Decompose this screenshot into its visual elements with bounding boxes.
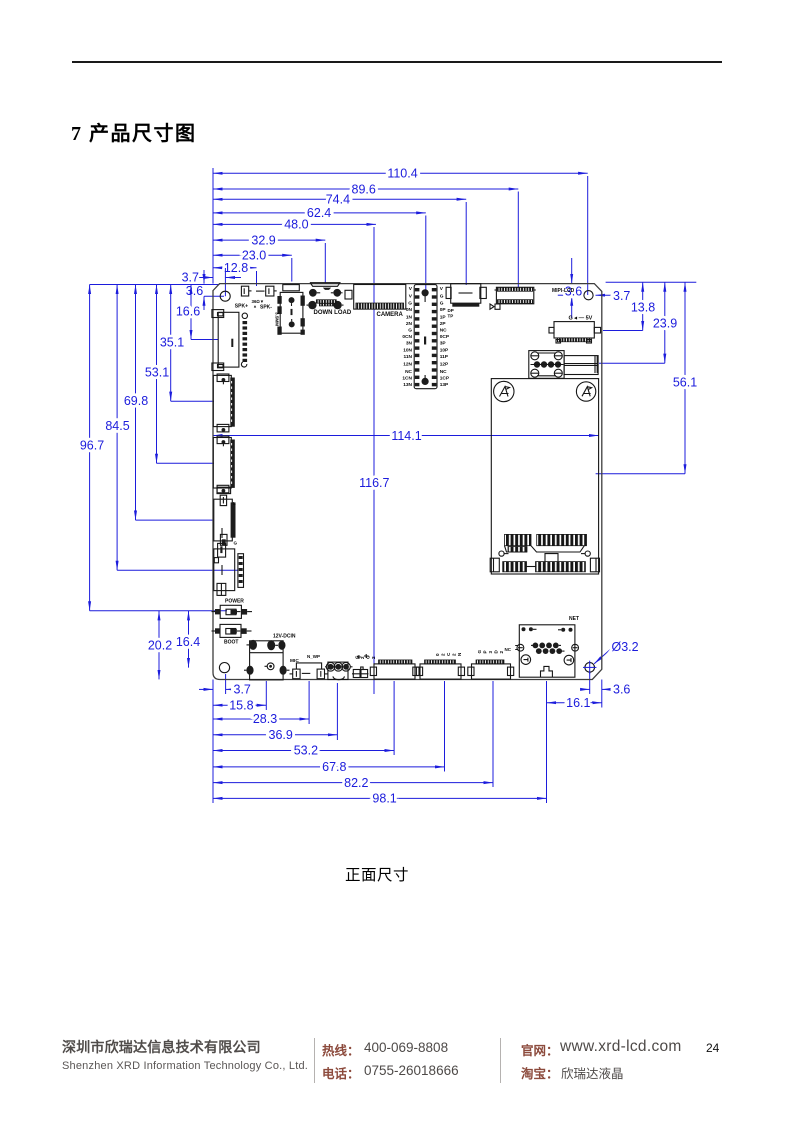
svg-text:0: 0 bbox=[435, 653, 440, 656]
svg-text:2: 2 bbox=[360, 656, 365, 659]
svg-text:48.0: 48.0 bbox=[284, 218, 308, 232]
svg-text:98.1: 98.1 bbox=[372, 792, 396, 806]
svg-text:23.9: 23.9 bbox=[653, 317, 677, 331]
svg-text:116.7: 116.7 bbox=[359, 476, 389, 490]
svg-text:P: P bbox=[483, 650, 488, 653]
svg-text:SPK+: SPK+ bbox=[235, 304, 248, 310]
svg-text:53.1: 53.1 bbox=[145, 366, 169, 380]
svg-text:16.4: 16.4 bbox=[176, 635, 200, 649]
svg-text:D: D bbox=[494, 650, 499, 654]
svg-text:NC: NC bbox=[505, 647, 512, 652]
svg-text:96.7: 96.7 bbox=[80, 439, 104, 453]
svg-text:89.6: 89.6 bbox=[352, 182, 376, 196]
svg-text:16.6: 16.6 bbox=[176, 305, 200, 319]
svg-text:84.5: 84.5 bbox=[105, 419, 129, 433]
svg-text:SPK-: SPK- bbox=[260, 305, 272, 311]
svg-text:12.8: 12.8 bbox=[224, 261, 248, 275]
svg-text:C: C bbox=[446, 652, 451, 656]
svg-text:POWER: POWER bbox=[225, 599, 244, 605]
svg-text:▲: ▲ bbox=[253, 304, 257, 309]
svg-text:53.2: 53.2 bbox=[294, 744, 318, 758]
svg-text:3: 3 bbox=[488, 651, 493, 654]
svg-text:114.1: 114.1 bbox=[391, 429, 421, 443]
svg-text:36.9: 36.9 bbox=[269, 728, 293, 742]
svg-text:L: L bbox=[233, 501, 236, 506]
svg-text:G: G bbox=[477, 650, 482, 654]
svg-text:12V-DCIN: 12V-DCIN bbox=[273, 634, 296, 640]
svg-text:62.4: 62.4 bbox=[307, 206, 331, 220]
svg-text:3.6: 3.6 bbox=[186, 284, 203, 298]
svg-text:2: 2 bbox=[499, 651, 504, 654]
svg-text:13.8: 13.8 bbox=[631, 301, 655, 315]
svg-text:NET: NET bbox=[569, 616, 579, 622]
svg-text:TP: TP bbox=[448, 314, 454, 319]
svg-text:2: 2 bbox=[371, 656, 376, 659]
svg-text:G: G bbox=[366, 655, 371, 659]
svg-text:67.8: 67.8 bbox=[322, 760, 346, 774]
svg-text:N_WP: N_WP bbox=[307, 654, 320, 659]
svg-text:Ø3.2: Ø3.2 bbox=[612, 640, 639, 654]
svg-text:15.8: 15.8 bbox=[229, 698, 253, 712]
svg-text:74.4: 74.4 bbox=[326, 193, 350, 207]
svg-text:DP: DP bbox=[448, 308, 454, 313]
svg-text:G: G bbox=[234, 541, 238, 546]
svg-text:3.7: 3.7 bbox=[182, 271, 199, 285]
svg-text:3.5MM: 3.5MM bbox=[275, 312, 280, 326]
svg-text:MIPI-LCD: MIPI-LCD bbox=[552, 288, 575, 294]
svg-text:56.1: 56.1 bbox=[673, 376, 697, 390]
svg-text:2: 2 bbox=[441, 653, 446, 656]
svg-text:3.7: 3.7 bbox=[234, 683, 251, 697]
svg-text:35.1: 35.1 bbox=[160, 336, 184, 350]
svg-text:CAMERA: CAMERA bbox=[377, 312, 404, 318]
svg-text:82.2: 82.2 bbox=[344, 776, 368, 790]
svg-text:VGG0P1P2PNC0CP3P10P11P12PNC1CP: VGG0P1P2PNC0CP3P10P11P12PNC1CP13P bbox=[440, 286, 450, 388]
svg-text:2: 2 bbox=[452, 653, 457, 656]
svg-text:VVG0N1N2NG0CN3N10N11N12NNC1CN1: VVG0N1N2NG0CN3N10N11N12NNC1CN13N bbox=[402, 286, 412, 388]
svg-text:3.6: 3.6 bbox=[613, 683, 630, 697]
svg-text:G: G bbox=[355, 655, 360, 659]
svg-text:28.3: 28.3 bbox=[253, 712, 277, 726]
svg-text:32.9: 32.9 bbox=[251, 233, 275, 247]
svg-text:20.2: 20.2 bbox=[148, 639, 172, 653]
svg-text:16.1: 16.1 bbox=[566, 696, 590, 710]
svg-text:3.7: 3.7 bbox=[613, 289, 630, 303]
svg-text:BOOT: BOOT bbox=[224, 640, 238, 646]
svg-text:69.8: 69.8 bbox=[124, 394, 148, 408]
svg-text:N: N bbox=[457, 652, 462, 656]
svg-text:110.4: 110.4 bbox=[387, 167, 417, 181]
svg-text:DOWN LOAD: DOWN LOAD bbox=[314, 310, 352, 316]
svg-text:G ◂ — 5V: G ◂ — 5V bbox=[569, 316, 593, 322]
